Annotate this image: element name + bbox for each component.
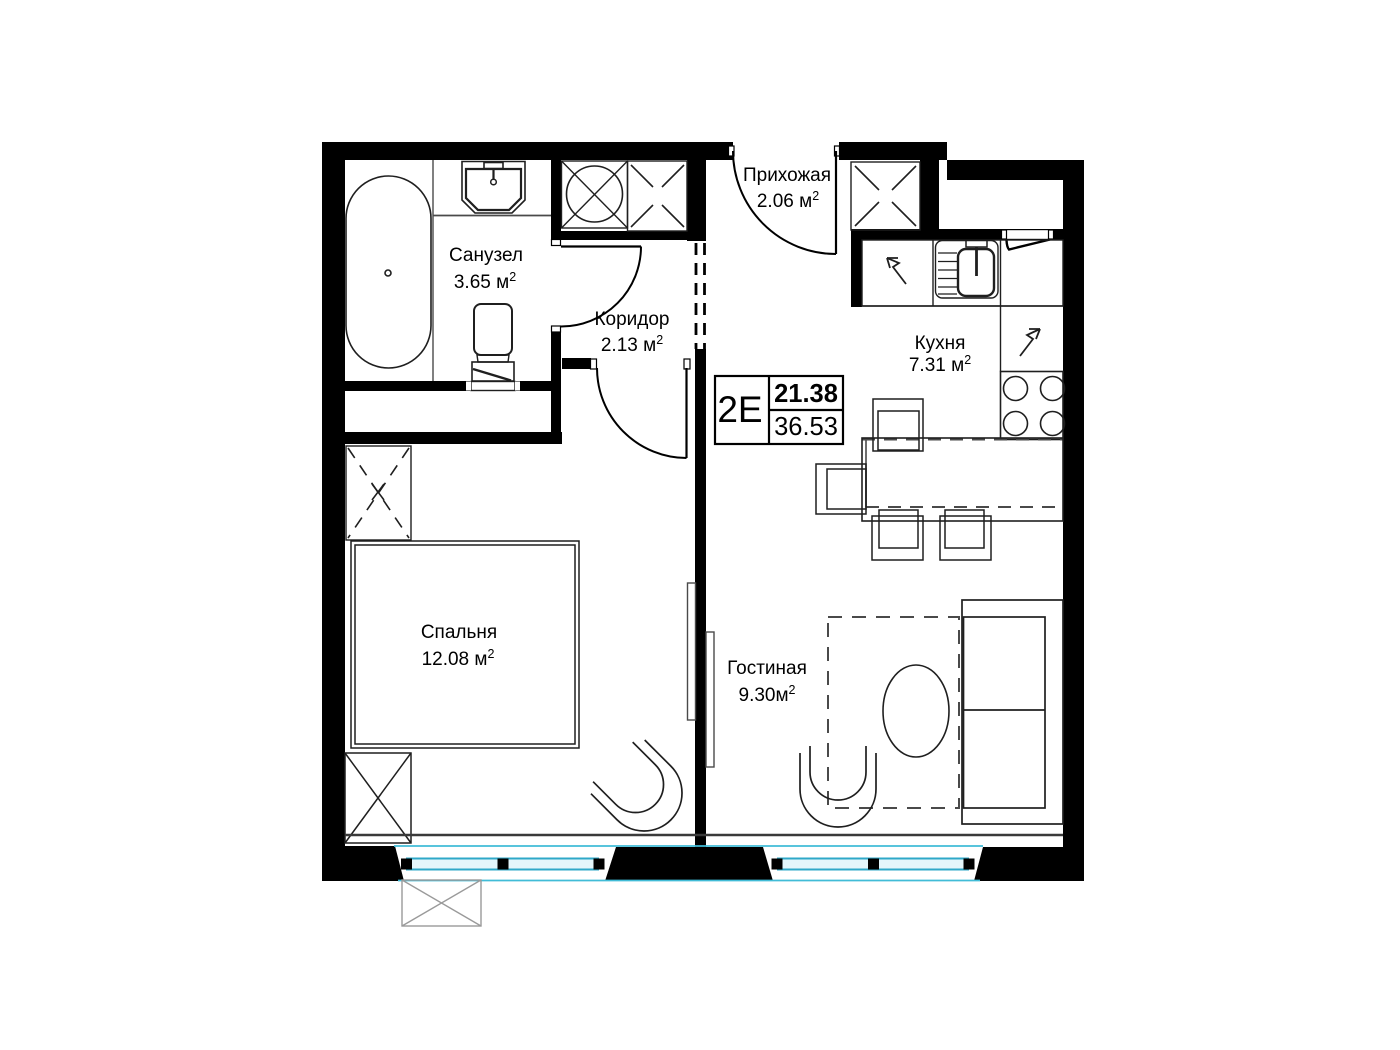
svg-text:2.13 м2: 2.13 м2	[601, 333, 663, 356]
svg-text:Гостиная: Гостиная	[727, 658, 807, 679]
svg-text:36.53: 36.53	[774, 413, 838, 441]
svg-text:Прихожая: Прихожая	[743, 165, 831, 186]
svg-text:2.06 м2: 2.06 м2	[757, 189, 819, 212]
svg-text:Спальня: Спальня	[421, 622, 497, 643]
svg-text:Санузел: Санузел	[449, 245, 523, 266]
svg-text:3.65 м2: 3.65 м2	[454, 270, 516, 293]
svg-text:21.38: 21.38	[774, 380, 838, 408]
svg-text:Кухня: Кухня	[915, 333, 966, 354]
svg-text:7.31 м2: 7.31 м2	[909, 353, 971, 376]
svg-text:12.08 м2: 12.08 м2	[422, 647, 495, 670]
svg-text:9.30м2: 9.30м2	[739, 683, 796, 706]
svg-text:2Е: 2Е	[717, 389, 762, 430]
